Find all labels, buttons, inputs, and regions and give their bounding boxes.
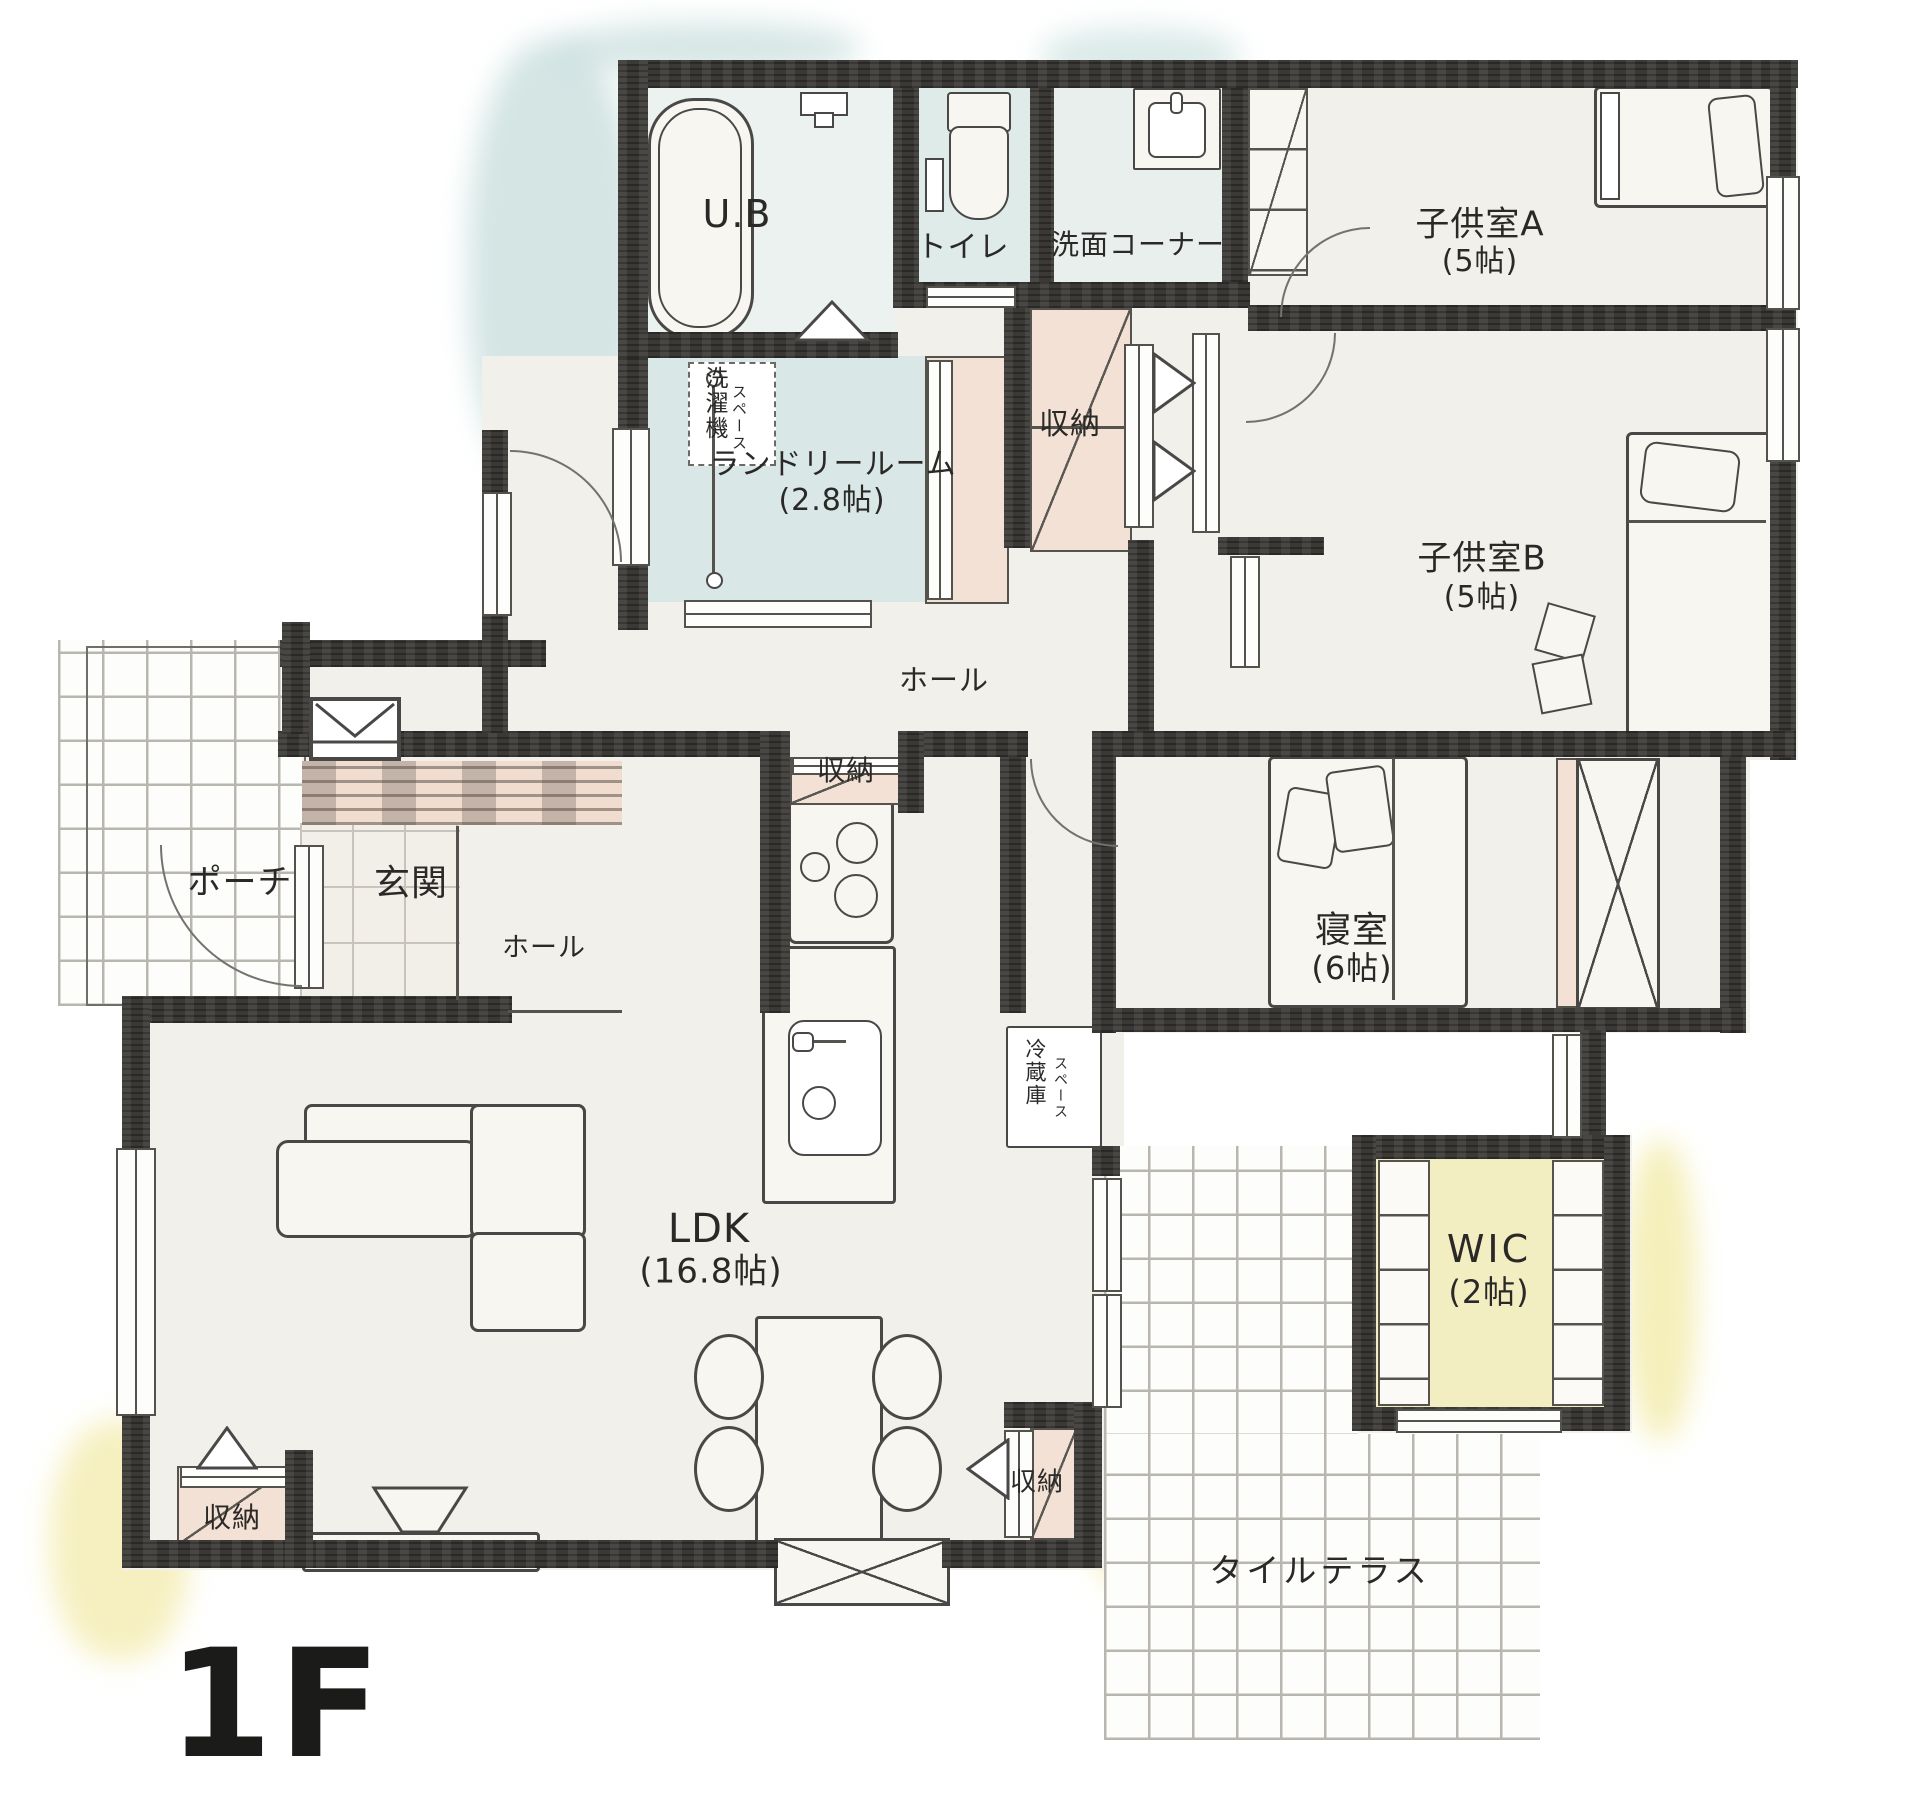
wall bbox=[1580, 1030, 1606, 1137]
wall bbox=[285, 1450, 313, 1568]
wall bbox=[1720, 757, 1746, 1033]
wall bbox=[898, 731, 924, 813]
genkan-step-line bbox=[456, 826, 459, 1000]
dining-chair bbox=[694, 1426, 764, 1512]
wall bbox=[1604, 1135, 1630, 1431]
stove-burner bbox=[834, 874, 878, 918]
wall bbox=[893, 88, 919, 308]
room-label-ub: U.B bbox=[703, 192, 772, 236]
wall bbox=[618, 60, 1798, 88]
closet-top-arrow bbox=[1152, 352, 1196, 414]
room-label-wic: WIC bbox=[1447, 1227, 1531, 1271]
storage-bl-label: 収納 bbox=[203, 1496, 261, 1536]
terrace-label: タイルテラス bbox=[1209, 1544, 1430, 1592]
ldk-window-left bbox=[116, 1148, 156, 1416]
floor-plan: U.B トイレ 洗面コーナー 子供室A (5帖) 収納 ランドリールーム (2.… bbox=[0, 0, 1920, 1816]
washer-space-label-1: 洗濯機 bbox=[697, 366, 731, 441]
sofa-chaise bbox=[470, 1232, 586, 1332]
room-size-wic: (2帖) bbox=[1448, 1267, 1529, 1313]
tv bbox=[368, 1484, 472, 1536]
floor-label: 1F bbox=[168, 1618, 387, 1792]
laundry-sliding-door bbox=[684, 600, 872, 628]
wall bbox=[1092, 731, 1796, 757]
fridge-space-label-1: 冷蔵庫 bbox=[1020, 1038, 1050, 1107]
corridor-door bbox=[482, 492, 512, 616]
toilet-washlet-panel bbox=[925, 158, 944, 212]
storage-mid-label: 収納 bbox=[817, 749, 875, 789]
ub-folding-door bbox=[790, 296, 874, 344]
wic-sliding-door bbox=[1396, 1409, 1562, 1433]
storage-bl-arrow bbox=[196, 1426, 258, 1470]
wall bbox=[482, 610, 508, 733]
wall bbox=[1092, 1146, 1120, 1176]
kids-a-closet bbox=[1248, 88, 1308, 276]
genkan-mailbox bbox=[308, 696, 402, 762]
room-label-toilet: トイレ bbox=[917, 222, 1010, 266]
kids-a-bed-foot bbox=[1600, 92, 1620, 200]
dining-table bbox=[755, 1316, 883, 1548]
kids-a-window bbox=[1766, 176, 1800, 310]
wall bbox=[1128, 540, 1154, 735]
storage-br-arrow bbox=[966, 1438, 1010, 1500]
room-label-wash-corner: 洗面コーナー bbox=[1051, 223, 1225, 263]
terrace-tiles-upper bbox=[1104, 1146, 1358, 1436]
hall-step-line bbox=[508, 1010, 622, 1013]
dining-chair bbox=[872, 1426, 942, 1512]
room-size-kids-a: (5帖) bbox=[1442, 236, 1519, 280]
bedroom-closet bbox=[1576, 758, 1660, 1010]
wall bbox=[924, 731, 1028, 757]
hall-upper-label: ホール bbox=[899, 657, 989, 699]
hall-entry-label: ホール bbox=[502, 926, 586, 965]
kitchen-faucet-base bbox=[792, 1032, 814, 1052]
wall bbox=[760, 731, 790, 1013]
kids-a-pillow bbox=[1707, 94, 1765, 198]
dining-chair bbox=[872, 1334, 942, 1420]
closet-top-door bbox=[1124, 344, 1154, 528]
genkan-label: 玄関 bbox=[374, 854, 448, 906]
wic-closet-right bbox=[1552, 1160, 1604, 1406]
wall bbox=[1000, 757, 1026, 1013]
dining-chair bbox=[694, 1334, 764, 1420]
kids-b-window bbox=[1766, 328, 1800, 462]
wall bbox=[1074, 1402, 1102, 1568]
kids-b-entry-door2 bbox=[1230, 556, 1260, 668]
genkan-shoe-cabinet bbox=[302, 761, 622, 825]
storage-top-label: 収納 bbox=[1039, 399, 1101, 443]
wall bbox=[148, 1540, 778, 1568]
window-bench bbox=[774, 1538, 950, 1606]
kids-b-entry-door bbox=[1192, 333, 1220, 533]
sofa-corner bbox=[470, 1104, 586, 1238]
terrace-sliding-door bbox=[1092, 1294, 1122, 1408]
kids-b-cushion bbox=[1532, 654, 1593, 715]
stove-burner bbox=[836, 822, 878, 864]
wall bbox=[1222, 88, 1248, 282]
bath-faucet bbox=[814, 112, 834, 128]
room-size-bedroom: (6帖) bbox=[1311, 943, 1392, 989]
wall bbox=[1352, 1135, 1628, 1159]
wall bbox=[122, 996, 512, 1023]
washbasin-faucet bbox=[1170, 92, 1183, 114]
wall bbox=[1092, 1008, 1746, 1032]
closet-top-arrow bbox=[1152, 440, 1196, 502]
laundry-pole-end bbox=[706, 572, 723, 589]
sink-drain bbox=[802, 1086, 836, 1120]
fridge-space-label-2: スペース bbox=[1050, 1056, 1070, 1120]
toilet-sliding-door bbox=[926, 286, 1016, 308]
wall bbox=[1352, 1135, 1376, 1431]
room-size-laundry: (2.8帖) bbox=[778, 475, 885, 519]
stove-burner bbox=[800, 852, 830, 882]
storage-br-label: 収納 bbox=[1010, 1462, 1064, 1499]
washer-space-label-2: スペース bbox=[729, 384, 750, 452]
wall bbox=[1004, 308, 1030, 548]
room-size-kids-b: (5帖) bbox=[1444, 572, 1521, 616]
kids-b-blanket-line bbox=[1628, 520, 1766, 523]
toilet-bowl bbox=[949, 126, 1009, 220]
bedroom-pillow bbox=[1325, 764, 1396, 854]
terrace-sliding-door bbox=[1092, 1178, 1122, 1292]
kids-b-pillow bbox=[1639, 440, 1742, 513]
room-size-ldk: (16.8帖) bbox=[639, 1244, 782, 1293]
wall bbox=[282, 622, 310, 734]
sofa-seat bbox=[276, 1140, 478, 1238]
porch-label: ポーチ bbox=[188, 855, 293, 904]
wic-closet-left bbox=[1378, 1160, 1430, 1406]
watercolor-yellow-blob bbox=[1626, 1140, 1696, 1440]
genkan-tiles bbox=[300, 823, 460, 1000]
bedroom-terrace-door bbox=[1552, 1034, 1582, 1138]
wall bbox=[1218, 537, 1324, 555]
